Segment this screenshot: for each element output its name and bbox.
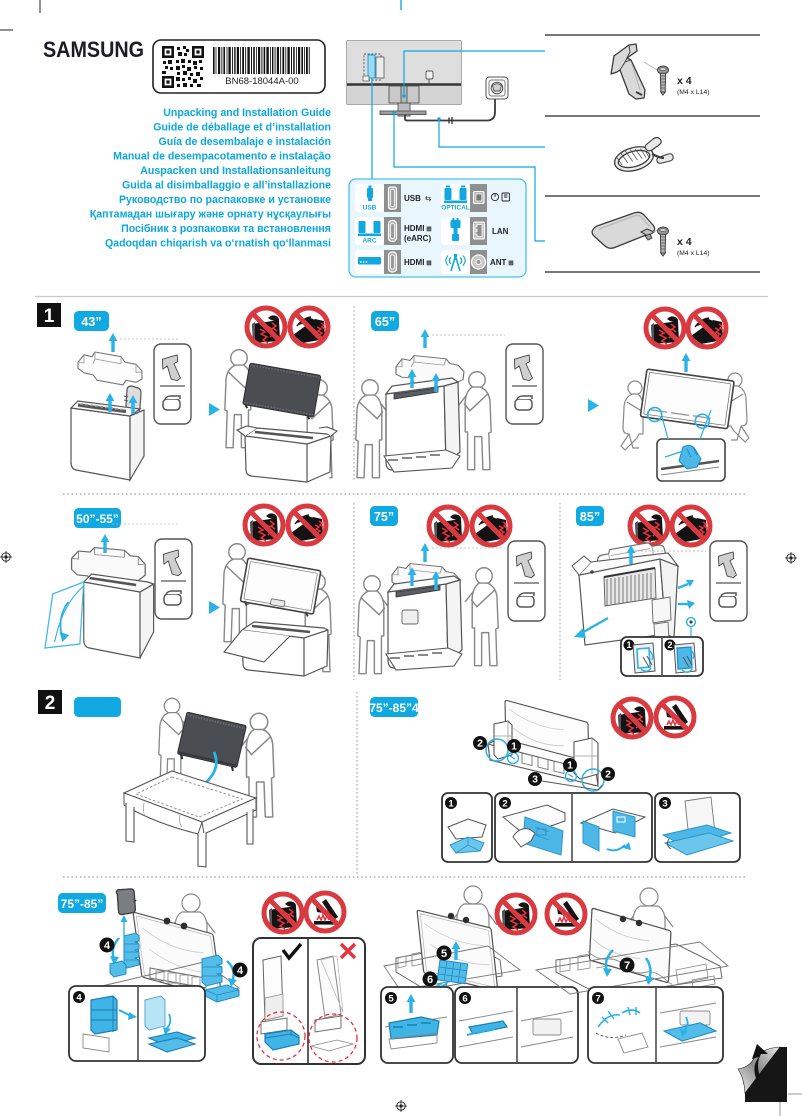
svg-text:OPTICAL: OPTICAL [441,205,470,212]
svg-text:x 4: x 4 [677,75,692,87]
svg-text:75”-85”4: 75”-85”4 [369,701,419,715]
svg-text:Qadoqdan chiqarish va o‘rnatis: Qadoqdan chiqarish va o‘rnatish qo‘llanm… [105,238,331,250]
svg-text:5: 5 [441,948,447,960]
svg-text:1: 1 [511,741,517,753]
svg-text:USB: USB [404,194,421,203]
svg-text:2: 2 [477,738,483,750]
svg-text:Guida al disimballaggio e all’: Guida al disimballaggio e all’installazi… [122,180,331,192]
svg-text:75”-85”: 75”-85” [61,897,104,911]
svg-text:3: 3 [662,799,667,810]
svg-text:Руководство по распаковке и ус: Руководство по распаковке и установке [119,194,331,206]
svg-text:⇆: ⇆ [425,194,432,203]
svg-text:6: 6 [427,974,433,986]
svg-text:BN68-18044A-00: BN68-18044A-00 [225,76,298,87]
svg-text:7: 7 [595,994,600,1005]
svg-text:ANT ⊞: ANT ⊞ [490,258,514,267]
svg-text:Unpacking and Installation Gui: Unpacking and Installation Guide [163,107,331,119]
svg-text:2: 2 [667,640,672,650]
svg-text:2: 2 [605,769,611,781]
svg-text:3: 3 [532,774,538,786]
svg-text:Қаптамадан шығару және орнату: Қаптамадан шығару және орнату нұсқаулығы [90,209,331,221]
svg-text:5: 5 [388,994,394,1005]
svg-text:2: 2 [502,799,507,810]
svg-text:85”: 85” [580,510,600,524]
svg-text:43”: 43” [81,315,101,329]
svg-text:1: 1 [44,306,55,327]
svg-text:LAN: LAN [492,227,509,236]
svg-text:SAMSUNG: SAMSUNG [43,38,144,62]
svg-text:4: 4 [76,993,82,1004]
svg-text:HDMI ⊞: HDMI ⊞ [404,258,432,267]
svg-text:7: 7 [624,960,630,972]
svg-text:65”: 65” [375,315,395,329]
svg-text:(M4 x L14): (M4 x L14) [677,89,709,96]
svg-text:1: 1 [448,799,454,810]
svg-text:2: 2 [45,693,56,714]
svg-text:x 4: x 4 [677,236,692,248]
svg-text:4: 4 [237,965,244,977]
svg-text:4: 4 [104,940,111,952]
svg-text:Guía de desembalaje e instalac: Guía de desembalaje e instalación [158,136,331,148]
svg-text:Посібник з розпаковки та встан: Посібник з розпаковки та встановлення [121,223,331,235]
svg-text:75”: 75” [374,510,394,524]
svg-text:(M4 x L14): (M4 x L14) [677,250,709,257]
svg-text:Manual de desempacotamento e i: Manual de desempacotamento e instalação [113,151,331,163]
svg-text:1: 1 [567,760,573,772]
svg-text:Guide de déballage et d’instal: Guide de déballage et d’installation [153,122,331,134]
svg-text:Auspacken und Installationsanl: Auspacken und Installationsanleitung [140,165,331,177]
svg-text:(eARC): (eARC) [404,234,431,243]
svg-text:USB: USB [363,205,377,212]
svg-text:HDMI ⊞: HDMI ⊞ [404,224,432,233]
svg-text:ARC: ARC [362,238,376,245]
svg-text:6: 6 [462,994,467,1005]
svg-text:1: 1 [626,640,631,650]
